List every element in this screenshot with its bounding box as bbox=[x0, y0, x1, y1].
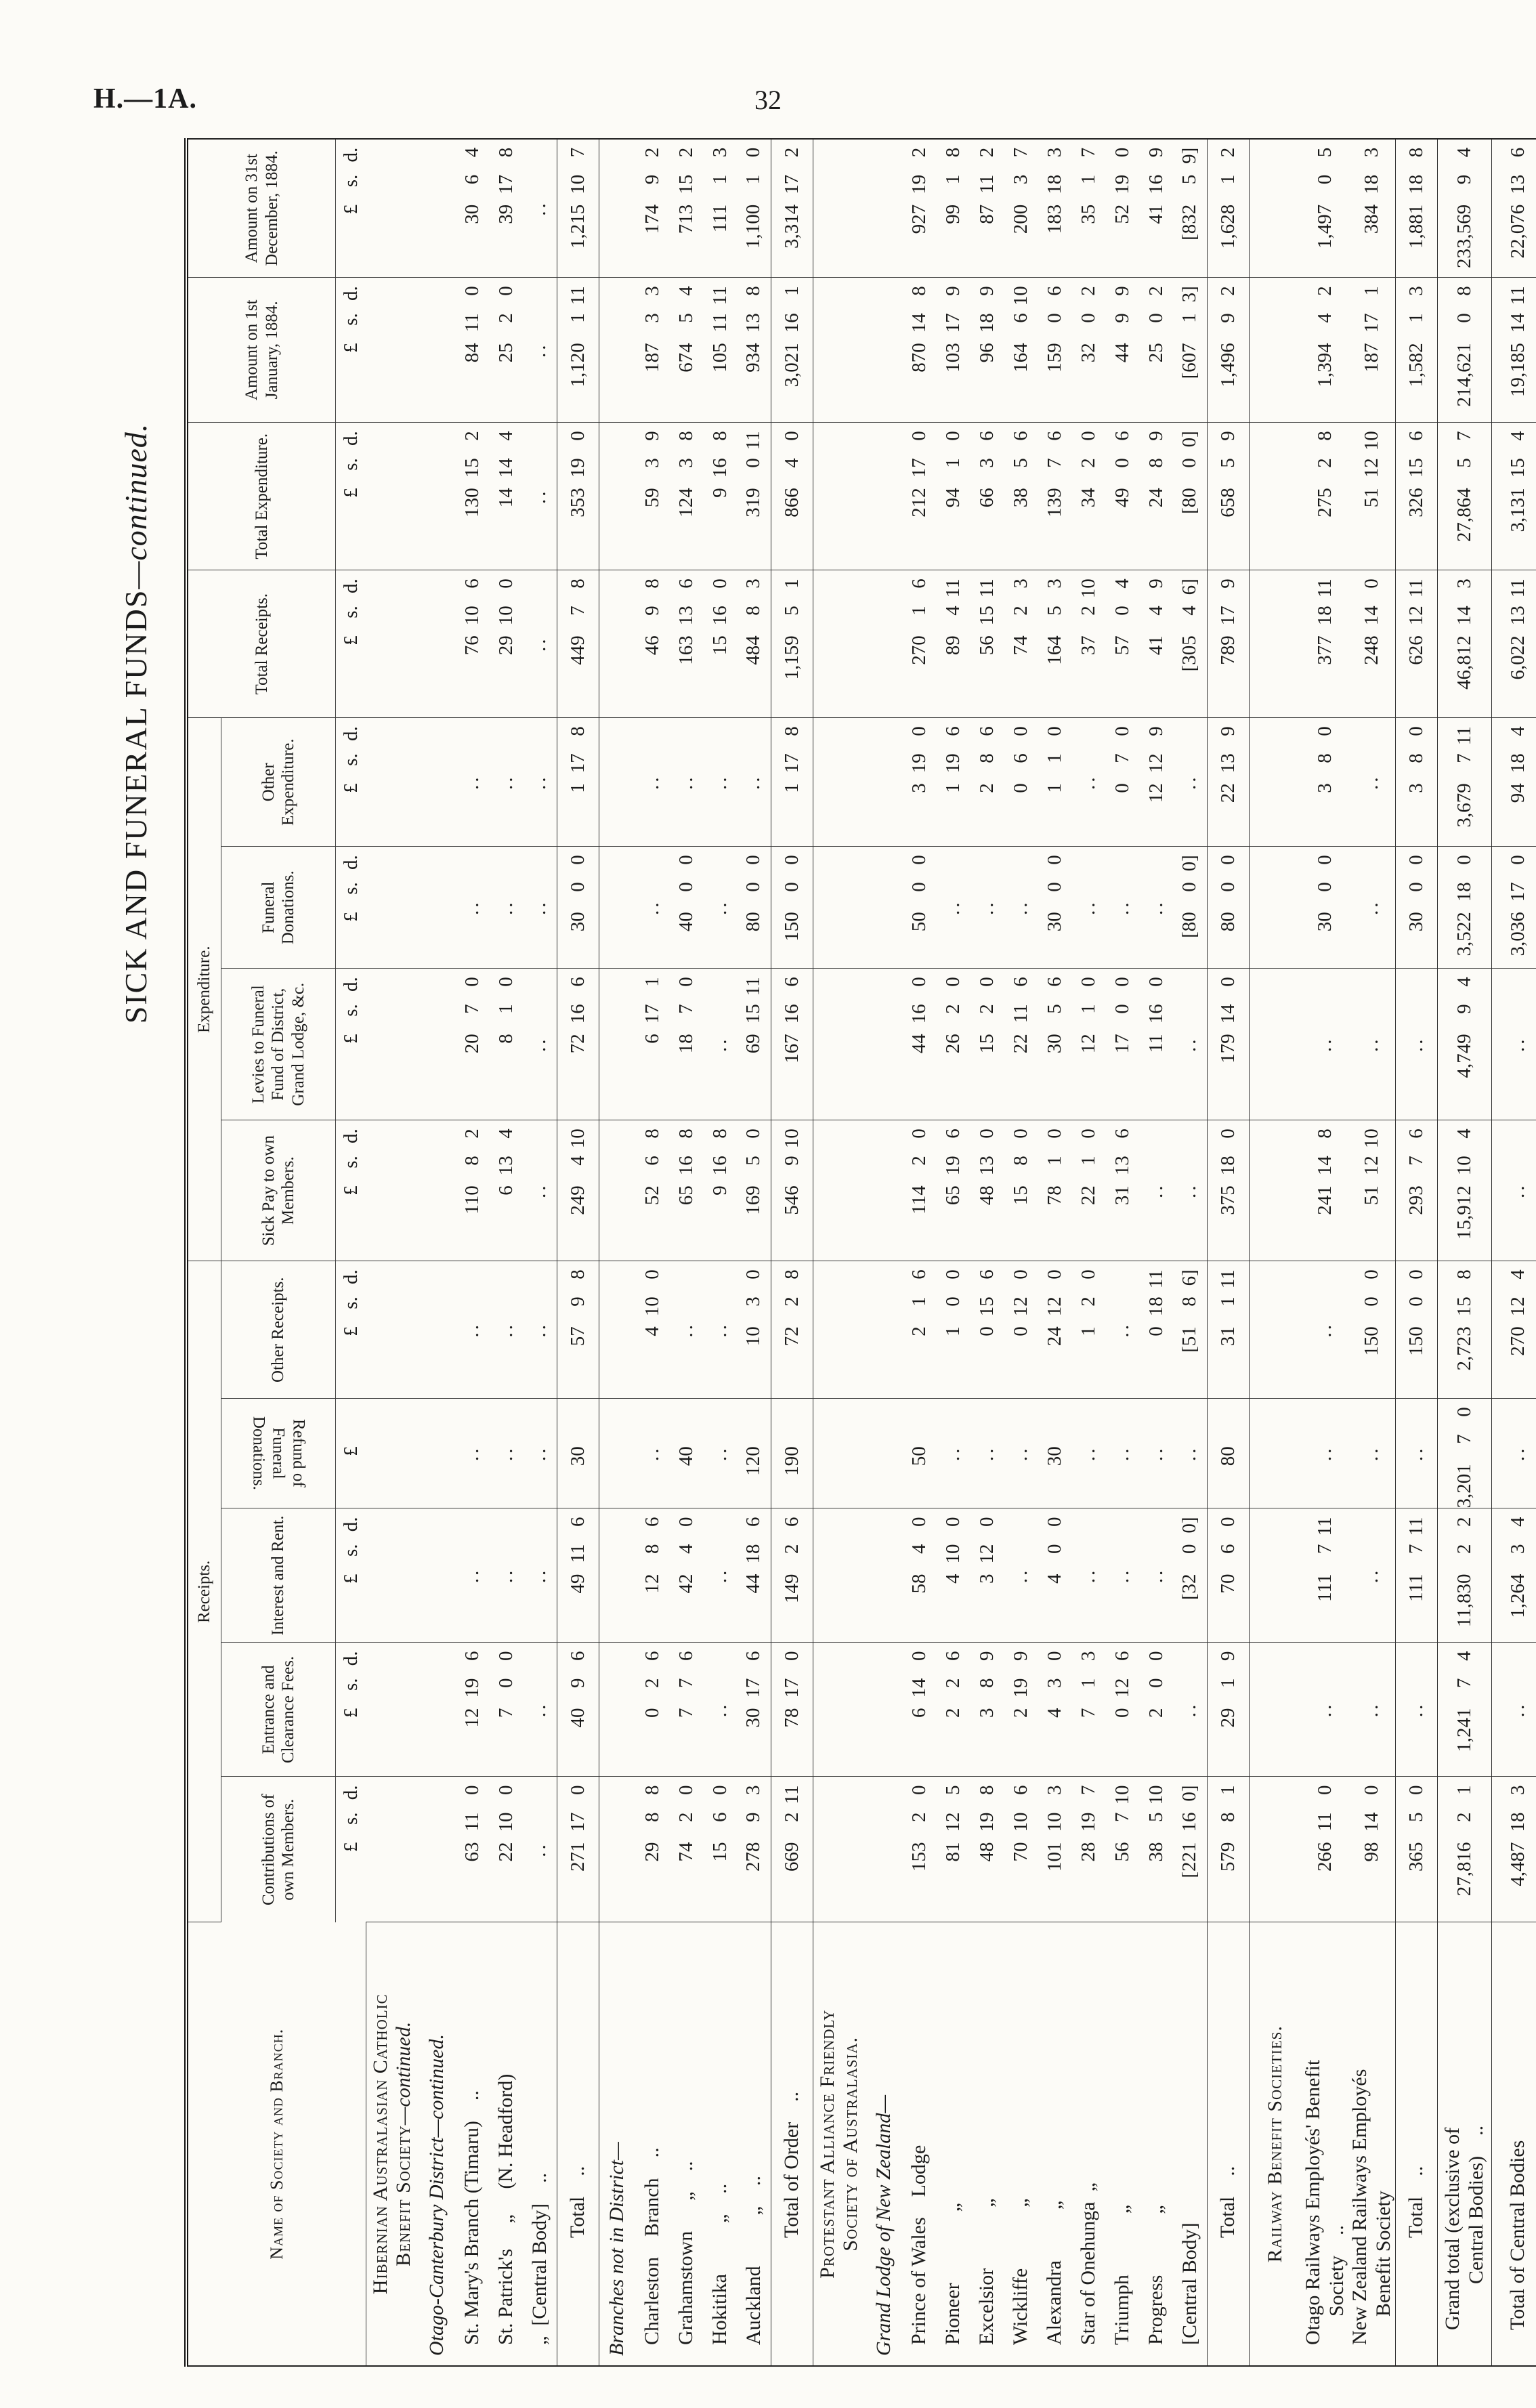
money-value: 216 bbox=[908, 1261, 931, 1398]
cell-entrance: .. bbox=[1348, 1643, 1396, 1777]
cell-other_expenditure: 380 bbox=[1302, 718, 1348, 847]
cell-funeral_donations bbox=[813, 847, 866, 969]
cell-interest bbox=[366, 1508, 419, 1643]
cell-amount_dec: 9918 bbox=[936, 139, 970, 278]
money-value: 15906 bbox=[1044, 278, 1066, 422]
cell-total_expenditure: 130152 bbox=[455, 423, 489, 570]
cell-contributions: 27,81621 bbox=[1438, 1777, 1492, 1922]
cell-entrance: 78170 bbox=[771, 1643, 813, 1777]
money-value: 22116 bbox=[1010, 969, 1032, 1120]
nil-value: .. bbox=[495, 1509, 517, 1643]
money-value: 41169 bbox=[1145, 140, 1168, 278]
nil-value: .. bbox=[1145, 1509, 1168, 1643]
money-value: 1,49692 bbox=[1217, 278, 1239, 422]
cell-entrance: 1,24174 bbox=[1438, 1643, 1492, 1777]
money-value: 11,83022 bbox=[1453, 1509, 1476, 1643]
units-cell-funeral_donations: £s.d. bbox=[336, 847, 366, 969]
cell-sick_pay: .. bbox=[1139, 1120, 1173, 1261]
money-value: 241148 bbox=[1314, 1120, 1336, 1261]
nil-value: .. bbox=[1507, 1643, 1529, 1777]
cell-levies bbox=[419, 969, 455, 1120]
money-value: 1870 bbox=[675, 969, 698, 1120]
money-value: 511210 bbox=[1361, 423, 1383, 570]
table-row: Grahamstown „ ..7420776424040..651681870… bbox=[669, 139, 703, 2366]
nil-value: .. bbox=[641, 718, 664, 846]
cell-funeral_donations: 8000 bbox=[737, 847, 771, 969]
money-value: 266110 bbox=[1314, 1777, 1336, 1922]
money-value: 3517 bbox=[1078, 140, 1100, 278]
cell-other_receipts: .. bbox=[489, 1261, 523, 1399]
money-value: 8000 bbox=[1217, 847, 1239, 968]
cell-total_receipts bbox=[599, 570, 635, 718]
row-label: Excelsior „ bbox=[970, 1922, 1004, 2366]
cell-contributions: 669211 bbox=[771, 1777, 813, 1922]
money-value: 16453 bbox=[1044, 570, 1066, 717]
cell-other_receipts: .. bbox=[669, 1261, 703, 1399]
nil-value: .. bbox=[528, 570, 551, 717]
table-row: Star of Onehunga „28197713....1202210121… bbox=[1071, 139, 1105, 2366]
column-header-funeral_donations: Funeral Donations. bbox=[221, 847, 336, 969]
group-header-receipts: Receipts. bbox=[186, 1261, 221, 1922]
money-value: 17492 bbox=[641, 140, 664, 278]
cell-total_receipts: 5704 bbox=[1105, 570, 1139, 718]
row-label: Hokitika „ .. bbox=[703, 1922, 737, 2366]
units-cell-interest: £s.d. bbox=[336, 1508, 366, 1643]
units-cell-amount_jan: £s.d. bbox=[336, 278, 366, 423]
cell-amount_dec: 1,62812 bbox=[1207, 139, 1249, 278]
table-row: Otago-Canterbury District—continued. bbox=[419, 139, 455, 2366]
report-page: H.—1A. 32 SICK AND FUNERAL FUNDS—continu… bbox=[0, 0, 1536, 2408]
nil-value: .. bbox=[461, 847, 484, 968]
cell-entrance: .. bbox=[1173, 1643, 1207, 1777]
cell-total_expenditure: 3856 bbox=[1004, 423, 1038, 570]
cell-amount_jan: 870148 bbox=[902, 278, 936, 423]
cell-amount_dec: .. bbox=[523, 139, 557, 278]
cell-other_receipts: .. bbox=[455, 1261, 489, 1399]
cell-amount_jan: 96189 bbox=[970, 278, 1004, 423]
money-value: 4100 bbox=[942, 1509, 964, 1643]
money-value: [60713] bbox=[1178, 278, 1201, 422]
cell-sick_pay: 11082 bbox=[455, 1120, 489, 1261]
cell-total_expenditure bbox=[419, 423, 455, 570]
nil-value: .. bbox=[528, 1509, 551, 1643]
cell-total_expenditure: 12438 bbox=[669, 423, 703, 570]
money-value: 22139 bbox=[1217, 718, 1239, 846]
table-title: SICK AND FUNERAL FUNDS—continued. bbox=[118, 358, 154, 1089]
money-value: [221160] bbox=[1178, 1777, 1201, 1922]
cell-total_expenditure: 9410 bbox=[936, 423, 970, 570]
cell-other_receipts: 4100 bbox=[635, 1261, 669, 1399]
cell-entrance: 6140 bbox=[902, 1643, 936, 1777]
money-value: 27893 bbox=[742, 1777, 765, 1922]
row-label: Railway Benefit Societies. bbox=[1249, 1922, 1302, 2366]
cell-contributions: 15320 bbox=[902, 1777, 936, 1922]
cell-refund: 30 bbox=[1038, 1399, 1071, 1508]
cell-amount_jan: [60713] bbox=[1173, 278, 1207, 423]
cell-sick_pay: 11420 bbox=[902, 1120, 936, 1261]
cell-entrance: .. bbox=[1396, 1643, 1438, 1777]
cell-total_expenditure: 5939 bbox=[635, 423, 669, 570]
money-value: 226 bbox=[942, 1643, 964, 1777]
money-value: 27016 bbox=[908, 570, 931, 717]
cell-levies: 810 bbox=[489, 969, 523, 1120]
units-cell-other_receipts: £s.d. bbox=[336, 1261, 366, 1399]
column-header-levies: Levies to Funeral Fund of District, Gran… bbox=[221, 969, 336, 1120]
money-value: 4,487183 bbox=[1507, 1777, 1529, 1922]
cell-entrance: .. bbox=[523, 1643, 557, 1777]
cell-other_receipts: .. bbox=[523, 1261, 557, 1399]
nil-value: .. bbox=[1178, 969, 1201, 1120]
cell-levies: 2620 bbox=[936, 969, 970, 1120]
cell-interest: 1,26434 bbox=[1492, 1508, 1536, 1643]
row-label: Total of Central Bodies bbox=[1492, 1922, 1536, 2366]
money-value: 1,62812 bbox=[1217, 140, 1239, 278]
cell-amount_jan: 1,58213 bbox=[1396, 278, 1438, 423]
nil-value: .. bbox=[1405, 1643, 1428, 1777]
nil-value: .. bbox=[495, 718, 517, 846]
cell-other_receipts: [5186] bbox=[1173, 1261, 1207, 1399]
cell-total_expenditure: 319011 bbox=[737, 423, 771, 570]
money-value: 11113 bbox=[709, 140, 731, 278]
money-value: 20037 bbox=[1010, 140, 1032, 278]
cell-funeral_donations bbox=[419, 847, 455, 969]
money-value: 3771811 bbox=[1314, 570, 1336, 717]
table-row: [Central Body][221160]..[3200]..[5186]..… bbox=[1173, 139, 1207, 2366]
cell-other_receipts bbox=[1249, 1261, 1302, 1399]
cell-sick_pay bbox=[366, 1120, 419, 1261]
nil-value: .. bbox=[528, 969, 551, 1120]
nil-value: .. bbox=[709, 1509, 731, 1643]
money-value: 29376 bbox=[1405, 1120, 1428, 1261]
cell-other_expenditure: .. bbox=[1348, 718, 1396, 847]
cell-levies: 4,74994 bbox=[1438, 969, 1492, 1120]
units-cell-entrance: £s.d. bbox=[336, 1643, 366, 1777]
units-cell-total_expenditure: £s.d. bbox=[336, 423, 366, 570]
cell-amount_jan: 3202 bbox=[1071, 278, 1105, 423]
money-value: 76106 bbox=[461, 570, 484, 717]
cell-interest bbox=[1249, 1508, 1302, 1643]
cell-total_receipts: 4698 bbox=[635, 570, 669, 718]
row-label: Total of Order .. bbox=[771, 1922, 813, 2366]
nil-value: .. bbox=[1078, 1399, 1100, 1508]
nil-value: .. bbox=[528, 847, 551, 968]
row-label: Prince of Wales Lodge bbox=[902, 1922, 936, 2366]
column-header-other_expenditure: Other Expenditure. bbox=[221, 718, 336, 847]
cell-total_receipts: 1,15951 bbox=[771, 570, 813, 718]
cell-other_receipts: 31111 bbox=[1207, 1261, 1249, 1399]
cell-funeral_donations: .. bbox=[1139, 847, 1173, 969]
money-value: 65196 bbox=[942, 1120, 964, 1261]
money-value: 1210 bbox=[1078, 969, 1100, 1120]
money-value: 96189 bbox=[976, 278, 998, 422]
cell-interest: 3120 bbox=[970, 1508, 1004, 1643]
money-value: 44186 bbox=[742, 1509, 765, 1643]
row-label: Otago Railways Employés' BenefitSociety … bbox=[1302, 1922, 1348, 2366]
money-value: 4,74994 bbox=[1453, 969, 1476, 1120]
row-label: Auckland „ .. bbox=[737, 1922, 771, 2366]
table-row: Auckland „ ..278933017644186120103016950… bbox=[737, 139, 771, 2366]
money-value: 3,021161 bbox=[781, 278, 803, 422]
money-value: 80 bbox=[1217, 1399, 1239, 1508]
money-value: 15,912104 bbox=[1453, 1120, 1476, 1261]
cell-levies: 6171 bbox=[635, 969, 669, 1120]
nil-value: .. bbox=[1078, 718, 1100, 846]
cell-refund: 30 bbox=[557, 1399, 599, 1508]
money-value: 870148 bbox=[908, 278, 931, 422]
cell-amount_jan: 19,1851411 bbox=[1492, 278, 1536, 423]
table-row: Total ..27117040964911630579824941072166… bbox=[557, 139, 599, 2366]
nil-value: .. bbox=[1010, 1399, 1032, 1508]
cell-funeral_donations: 3000 bbox=[1038, 847, 1071, 969]
cell-amount_jan bbox=[866, 278, 902, 423]
cell-amount_jan: 18733 bbox=[635, 278, 669, 423]
cell-total_receipts bbox=[366, 570, 419, 718]
cell-other_expenditure bbox=[599, 718, 635, 847]
money-value: 70106 bbox=[1010, 1777, 1032, 1922]
table-row: Excelsior „481983893120..0156481301520..… bbox=[970, 139, 1004, 2366]
cell-refund: 120 bbox=[737, 1399, 771, 1508]
money-value: 31111 bbox=[1217, 1261, 1239, 1398]
cell-contributions: 28197 bbox=[1071, 1777, 1105, 1922]
cell-refund bbox=[813, 1399, 866, 1508]
row-label: Grand total (exclusive ofCentral Bodies)… bbox=[1438, 1922, 1492, 2366]
cell-interest bbox=[599, 1508, 635, 1643]
cell-entrance: 389 bbox=[970, 1643, 1004, 1777]
money-value: 1580 bbox=[1010, 1120, 1032, 1261]
cell-amount_dec bbox=[1249, 139, 1302, 278]
money-value: 2988 bbox=[641, 1777, 664, 1922]
money-value: 30 bbox=[567, 1399, 589, 1508]
money-value: 120 bbox=[1078, 1261, 1100, 1398]
money-value: 6636 bbox=[976, 423, 998, 570]
nil-value: .. bbox=[528, 718, 551, 846]
money-value: 2199 bbox=[1010, 1643, 1032, 1777]
cell-funeral_donations: 3000 bbox=[1302, 847, 1348, 969]
money-value: 72166 bbox=[567, 969, 589, 1120]
money-value: 27,81621 bbox=[1453, 1777, 1476, 1922]
cell-total_expenditure: 14144 bbox=[489, 423, 523, 570]
cell-amount_jan: 2520 bbox=[489, 278, 523, 423]
cell-sick_pay bbox=[1249, 1120, 1302, 1261]
cell-total_expenditure: 86640 bbox=[771, 423, 813, 570]
table-row: Protestant Alliance FriendlySociety of A… bbox=[813, 139, 866, 2366]
nil-value: .. bbox=[1361, 969, 1383, 1120]
cell-sick_pay: 6134 bbox=[489, 1120, 523, 1261]
money-value: 2210 bbox=[1078, 1120, 1100, 1261]
cell-contributions: 7420 bbox=[669, 1777, 703, 1922]
cell-other_expenditure bbox=[866, 718, 902, 847]
cell-other_expenditure: .. bbox=[1071, 718, 1105, 847]
money-value: 19,1851411 bbox=[1507, 278, 1529, 422]
money-value: 63110 bbox=[461, 1777, 484, 1922]
cell-sick_pay bbox=[866, 1120, 902, 1261]
money-value: 24120 bbox=[1044, 1261, 1066, 1398]
cell-refund: 190 bbox=[771, 1399, 813, 1508]
money-value: 130152 bbox=[461, 423, 484, 570]
money-value: 776 bbox=[675, 1643, 698, 1777]
cell-refund: .. bbox=[455, 1399, 489, 1508]
cell-amount_jan: .. bbox=[523, 278, 557, 423]
table-row: Total of Central Bodies4,487183..1,26434… bbox=[1492, 139, 1536, 2366]
money-value: 375180 bbox=[1217, 1120, 1239, 1261]
cell-total_receipts: 7423 bbox=[1004, 570, 1038, 718]
cell-levies: 167166 bbox=[771, 969, 813, 1120]
cell-contributions: 56710 bbox=[1105, 1777, 1139, 1922]
cell-funeral_donations: .. bbox=[970, 847, 1004, 969]
nil-value: .. bbox=[461, 1261, 484, 1398]
money-value: 214,62108 bbox=[1453, 278, 1476, 422]
rotated-table-block: SICK AND FUNERAL FUNDS—continued. Name o… bbox=[56, 60, 1527, 2376]
units-cell-other_expenditure: £s.d. bbox=[336, 718, 366, 847]
money-value: 11160 bbox=[1145, 969, 1168, 1120]
cell-funeral_donations: 5000 bbox=[902, 847, 936, 969]
group-header-expenditure: Expenditure. bbox=[186, 718, 221, 1261]
cell-other_expenditure bbox=[366, 718, 419, 847]
cell-contributions: 2988 bbox=[635, 1777, 669, 1922]
cell-amount_jan: 1,39442 bbox=[1302, 278, 1348, 423]
money-value: 0156 bbox=[976, 1261, 998, 1398]
cell-total_expenditure: [8000] bbox=[1173, 423, 1207, 570]
cell-contributions: [221160] bbox=[1173, 1777, 1207, 1922]
money-value: 11420 bbox=[908, 1120, 931, 1261]
money-value: 3,036170 bbox=[1507, 847, 1529, 968]
cell-amount_dec: [83259] bbox=[1173, 139, 1207, 278]
money-value: 6,0221311 bbox=[1507, 570, 1529, 717]
cell-interest: 4100 bbox=[936, 1508, 970, 1643]
cell-other_expenditure: 3190 bbox=[902, 718, 936, 847]
cell-other_expenditure: .. bbox=[455, 718, 489, 847]
cell-contributions: 27893 bbox=[737, 1777, 771, 1922]
nil-value: .. bbox=[1010, 1509, 1032, 1643]
money-value: 3120 bbox=[976, 1509, 998, 1643]
money-value: 5268 bbox=[641, 1120, 664, 1261]
cell-total_expenditure: .. bbox=[523, 423, 557, 570]
cell-refund: .. bbox=[1173, 1399, 1207, 1508]
cell-other_expenditure: .. bbox=[1173, 718, 1207, 847]
cell-sick_pay: 375180 bbox=[1207, 1120, 1249, 1261]
money-value: 46,812143 bbox=[1453, 570, 1476, 717]
row-label: Branches not in District— bbox=[599, 1922, 635, 2366]
nil-value: .. bbox=[942, 1399, 964, 1508]
cell-other_expenditure: 22139 bbox=[1207, 718, 1249, 847]
money-value: 026 bbox=[641, 1643, 664, 1777]
table-row: Total of Order ..66921178170149261907228… bbox=[771, 139, 813, 2366]
cell-refund: .. bbox=[489, 1399, 523, 1508]
money-value: 700 bbox=[495, 1643, 517, 1777]
cell-refund: .. bbox=[970, 1399, 1004, 1508]
money-value: 353190 bbox=[567, 423, 589, 570]
cell-contributions: 101103 bbox=[1038, 1777, 1071, 1922]
cell-levies: 22116 bbox=[1004, 969, 1038, 1120]
nil-value: .. bbox=[495, 1399, 517, 1508]
cell-interest: .. bbox=[703, 1508, 737, 1643]
cell-entrance: 12196 bbox=[455, 1643, 489, 1777]
cell-total_receipts: 6,0221311 bbox=[1492, 570, 1536, 718]
money-value: 1,120111 bbox=[567, 278, 589, 422]
money-value: [3200] bbox=[1178, 1509, 1201, 1643]
cell-sick_pay bbox=[419, 1120, 455, 1261]
nil-value: .. bbox=[675, 1261, 698, 1398]
nil-value: .. bbox=[528, 1643, 551, 1777]
cell-sick_pay: 241148 bbox=[1302, 1120, 1348, 1261]
cell-interest bbox=[419, 1508, 455, 1643]
cell-interest: 44186 bbox=[737, 1508, 771, 1643]
cell-contributions bbox=[599, 1777, 635, 1922]
cell-levies: .. bbox=[1396, 969, 1438, 1120]
money-value: 1,49705 bbox=[1314, 140, 1336, 278]
cell-interest: 400 bbox=[1038, 1508, 1071, 1643]
cell-refund bbox=[419, 1399, 455, 1508]
cell-other_receipts: 15000 bbox=[1348, 1261, 1396, 1399]
money-value: 4096 bbox=[567, 1643, 589, 1777]
money-value: 7060 bbox=[1217, 1509, 1239, 1643]
nil-value: .. bbox=[942, 847, 964, 968]
cell-entrance: 0126 bbox=[1105, 1643, 1139, 1777]
cell-amount_dec: 3064 bbox=[455, 139, 489, 278]
money-value: 1560 bbox=[709, 1777, 731, 1922]
cell-levies: .. bbox=[523, 969, 557, 1120]
row-label: Triumph „ bbox=[1105, 1922, 1139, 2366]
money-value: 3064 bbox=[461, 140, 484, 278]
cell-total_receipts: 16453 bbox=[1038, 570, 1071, 718]
units-cell-refund: £ bbox=[336, 1399, 366, 1508]
cell-sick_pay: 7810 bbox=[1038, 1120, 1071, 1261]
column-header-total_expenditure: Total Expenditure. bbox=[186, 423, 336, 570]
nil-value: .. bbox=[1010, 847, 1032, 968]
cell-amount_dec: 17492 bbox=[635, 139, 669, 278]
money-value: 4100 bbox=[641, 1261, 664, 1398]
cell-other_receipts: 2,723158 bbox=[1438, 1261, 1492, 1399]
nil-value: .. bbox=[742, 718, 765, 846]
money-value: 3000 bbox=[1405, 847, 1428, 968]
cell-other_expenditure: .. bbox=[489, 718, 523, 847]
cell-other_expenditure: 1178 bbox=[771, 718, 813, 847]
row-label: Alexandra „ bbox=[1038, 1922, 1071, 2366]
nil-value: .. bbox=[1078, 847, 1100, 968]
money-value: 78170 bbox=[781, 1643, 803, 1777]
cell-other_receipts: 01811 bbox=[1139, 1261, 1173, 1399]
row-label: Otago-Canterbury District—continued. bbox=[419, 1922, 455, 2366]
cell-interest: 14926 bbox=[771, 1508, 813, 1643]
table-row: „ [Central Body] .......................… bbox=[523, 139, 557, 2366]
cell-entrance: 2199 bbox=[1004, 1643, 1038, 1777]
money-value: 3000 bbox=[1314, 847, 1336, 968]
cell-contributions: 22100 bbox=[489, 1777, 523, 1922]
money-value: 18733 bbox=[641, 278, 664, 422]
cell-entrance: 026 bbox=[635, 1643, 669, 1777]
cell-entrance bbox=[366, 1643, 419, 1777]
money-value: 5704 bbox=[1111, 570, 1134, 717]
money-value: 44978 bbox=[567, 570, 589, 717]
row-label: Grand Lodge of New Zealand— bbox=[866, 1922, 902, 2366]
money-value: 6140 bbox=[908, 1643, 931, 1777]
cell-total_expenditure bbox=[366, 423, 419, 570]
cell-refund: 40 bbox=[669, 1399, 703, 1508]
nil-value: .. bbox=[1361, 718, 1383, 846]
money-value: [30546] bbox=[1178, 570, 1201, 717]
table-title-continued: —continued. bbox=[119, 423, 153, 589]
cell-funeral_donations: .. bbox=[523, 847, 557, 969]
cell-contributions: 57981 bbox=[1207, 1777, 1249, 1922]
cell-total_expenditure bbox=[866, 423, 902, 570]
money-value: 12438 bbox=[675, 423, 698, 570]
cell-sick_pay: 48130 bbox=[970, 1120, 1004, 1261]
cell-levies bbox=[866, 969, 902, 1120]
money-value: 5840 bbox=[908, 1509, 931, 1643]
cell-sick_pay: 15,912104 bbox=[1438, 1120, 1492, 1261]
nil-value: .. bbox=[528, 140, 551, 278]
money-value: 3,131154 bbox=[1507, 423, 1529, 570]
